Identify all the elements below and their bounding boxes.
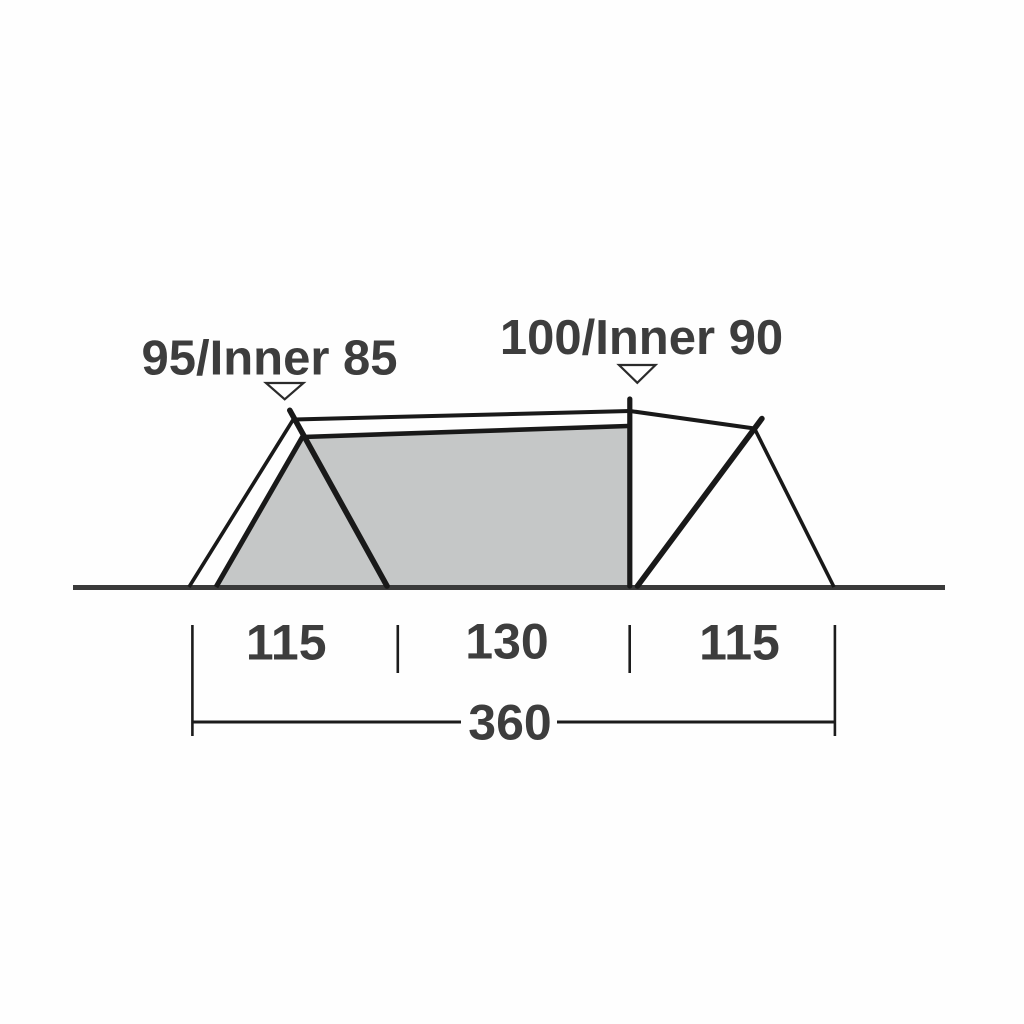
svg-text:95/Inner 85: 95/Inner 85 xyxy=(141,332,397,386)
svg-text:100/Inner 90: 100/Inner 90 xyxy=(500,311,783,365)
svg-text:115: 115 xyxy=(246,615,327,671)
svg-text:130: 130 xyxy=(465,614,548,670)
svg-text:115: 115 xyxy=(699,615,780,671)
svg-text:360: 360 xyxy=(468,695,551,751)
